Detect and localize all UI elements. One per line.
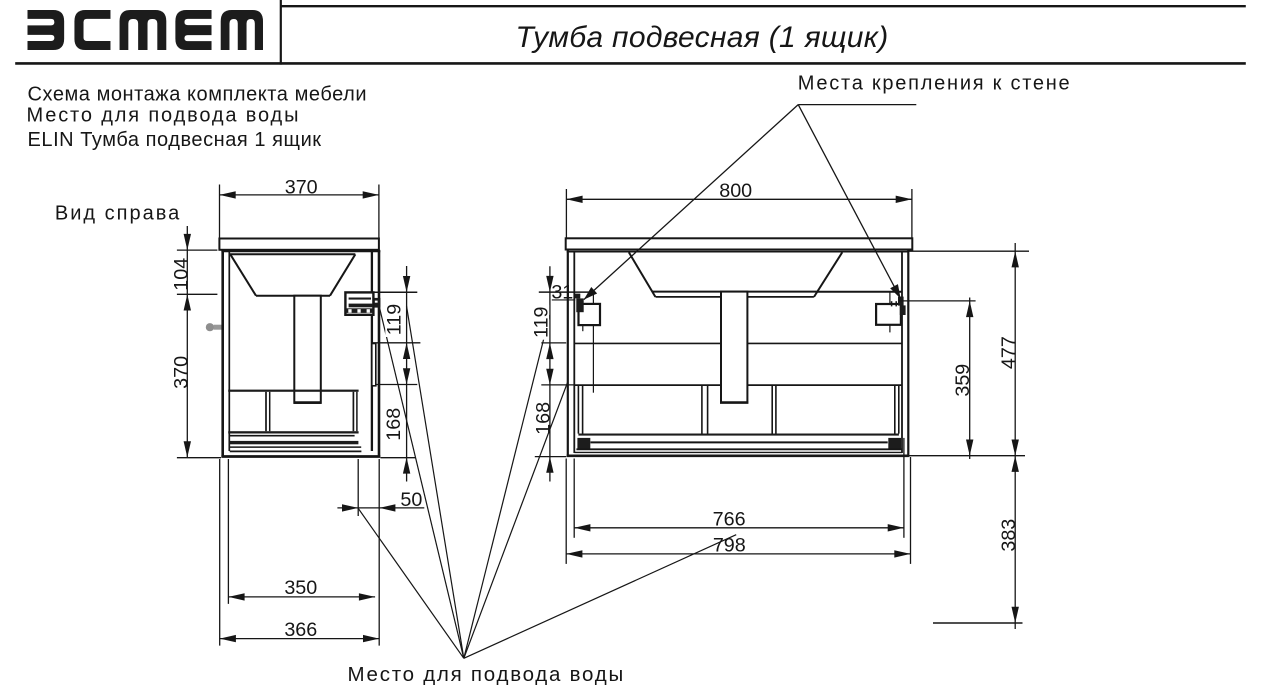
svg-text:383: 383 (998, 519, 1020, 552)
svg-text:Место для подвода воды: Место для подвода воды (27, 105, 301, 127)
svg-text:50: 50 (400, 489, 422, 511)
svg-text:119: 119 (531, 306, 553, 338)
svg-text:ELIN Тумба подвесная 1 ящик: ELIN Тумба подвесная 1 ящик (28, 129, 322, 151)
svg-text:477: 477 (998, 336, 1020, 369)
svg-text:798: 798 (713, 535, 746, 557)
svg-text:800: 800 (719, 180, 752, 202)
svg-text:31: 31 (551, 282, 573, 304)
svg-text:359: 359 (952, 364, 974, 397)
svg-text:370: 370 (285, 176, 318, 198)
svg-text:766: 766 (713, 509, 746, 531)
svg-text:Вид справа: Вид справа (55, 203, 181, 225)
svg-text:350: 350 (284, 577, 317, 599)
svg-text:Тумба подвесная (1 ящик): Тумба подвесная (1 ящик) (515, 21, 888, 54)
svg-text:366: 366 (284, 619, 317, 641)
svg-text:370: 370 (170, 356, 192, 389)
svg-text:Места крепления к стене: Места крепления к стене (798, 73, 1072, 95)
svg-text:119: 119 (383, 304, 405, 336)
svg-text:168: 168 (532, 402, 554, 435)
svg-text:104: 104 (171, 258, 193, 291)
svg-text:Место для подвода воды: Место для подвода воды (348, 663, 625, 686)
svg-text:Схема монтажа комплекта мебели: Схема монтажа комплекта мебели (28, 83, 368, 105)
svg-text:168: 168 (383, 408, 405, 441)
